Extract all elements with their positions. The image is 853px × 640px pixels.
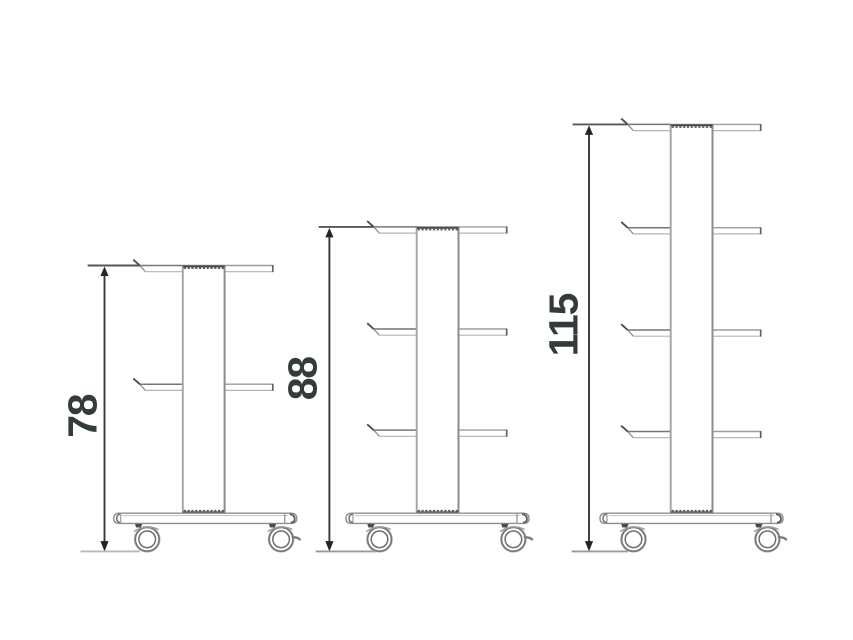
svg-text:78: 78 xyxy=(59,394,105,438)
svg-text:115: 115 xyxy=(540,293,586,356)
svg-text:88: 88 xyxy=(280,357,326,401)
